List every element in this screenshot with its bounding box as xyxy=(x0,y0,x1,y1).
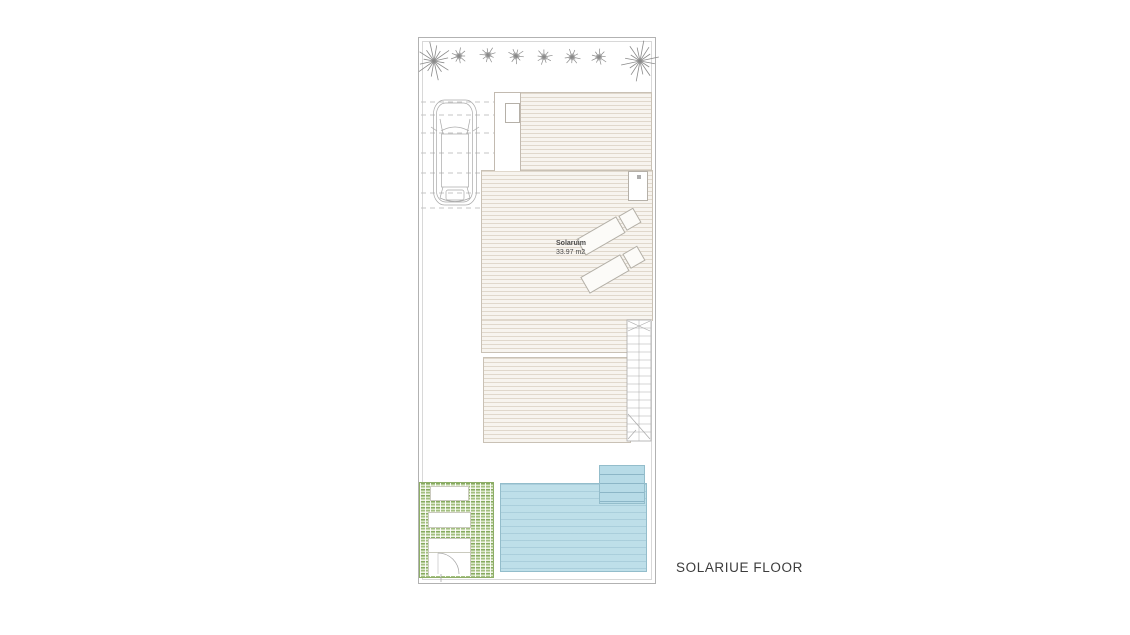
roof-fixture xyxy=(505,103,520,123)
solarium-deck-lower xyxy=(483,357,631,443)
planter xyxy=(428,512,471,528)
fixture-dot xyxy=(637,175,641,179)
planter xyxy=(430,486,469,501)
solarium-deck-upper-right xyxy=(519,92,652,171)
room-name: Solaruim xyxy=(556,239,586,248)
gate-area xyxy=(428,552,471,576)
solarium-deck-mid xyxy=(481,320,629,353)
pool-steps xyxy=(599,465,645,504)
planter xyxy=(428,538,471,553)
room-label: Solaruim 33.97 m2 xyxy=(556,239,586,257)
room-area: 33.97 m2 xyxy=(556,248,586,257)
floor-plan-sheet: Solaruim 33.97 m2 SOLARIUE FLOOR xyxy=(0,0,1130,635)
floor-title: SOLARIUE FLOOR xyxy=(676,560,803,575)
